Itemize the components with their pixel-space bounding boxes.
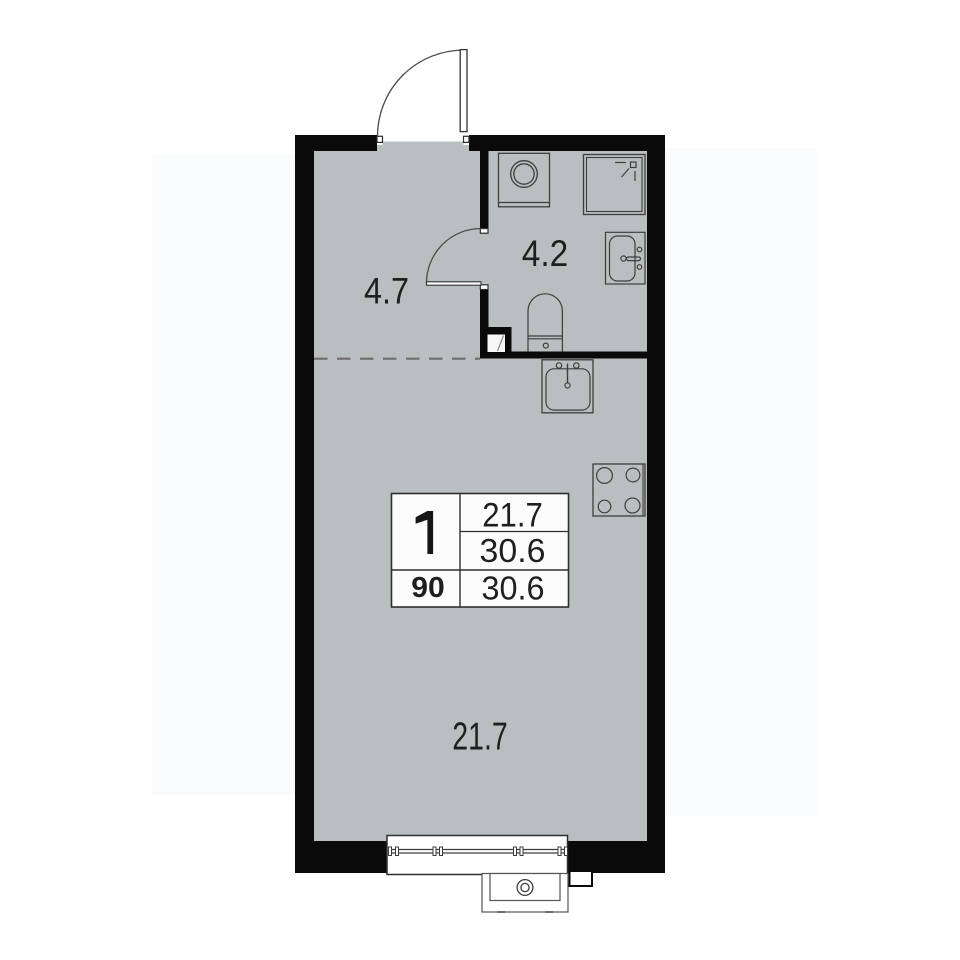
svg-text:4.2: 4.2	[522, 233, 569, 274]
svg-text:21.7: 21.7	[482, 497, 543, 535]
svg-text:90: 90	[411, 572, 445, 604]
svg-text:30.6: 30.6	[480, 532, 546, 569]
svg-text:4.7: 4.7	[364, 271, 409, 312]
svg-text:21.7: 21.7	[452, 716, 508, 759]
svg-text:30.6: 30.6	[482, 570, 545, 607]
